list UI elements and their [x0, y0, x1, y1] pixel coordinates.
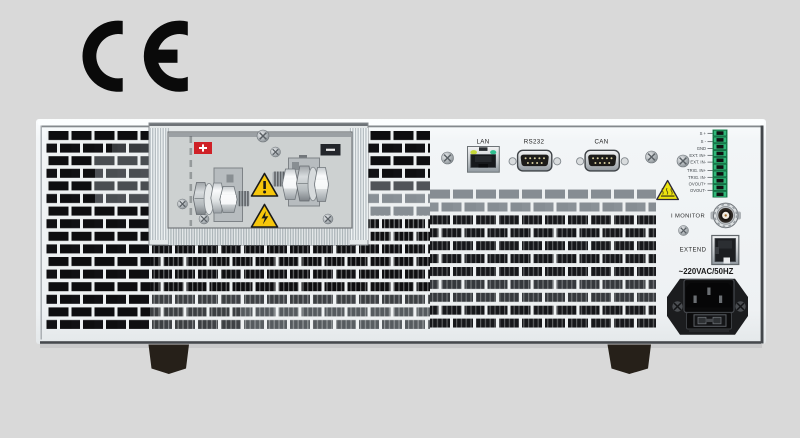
svg-text:GND: GND: [697, 146, 706, 151]
svg-text:TRIG. IN+: TRIG. IN+: [687, 168, 707, 173]
svg-text:~220VAC/50HZ: ~220VAC/50HZ: [679, 267, 734, 276]
svg-text:OVOUT+: OVOUT+: [689, 181, 707, 186]
svg-text:S -: S -: [701, 139, 707, 144]
svg-text:LAN: LAN: [477, 139, 490, 146]
svg-text:EXTEND: EXTEND: [680, 248, 707, 254]
svg-text:EXT. IN-: EXT. IN-: [690, 160, 706, 165]
svg-text:RS232: RS232: [524, 139, 545, 146]
svg-text:S +: S +: [700, 131, 707, 136]
svg-text:EXT. IN+: EXT. IN+: [689, 153, 706, 158]
svg-text:I MONITOR: I MONITOR: [671, 214, 705, 220]
svg-text:TRIG. IN-: TRIG. IN-: [688, 175, 707, 180]
svg-text:OVOUT-: OVOUT-: [690, 188, 707, 193]
svg-text:CAN: CAN: [595, 139, 609, 146]
